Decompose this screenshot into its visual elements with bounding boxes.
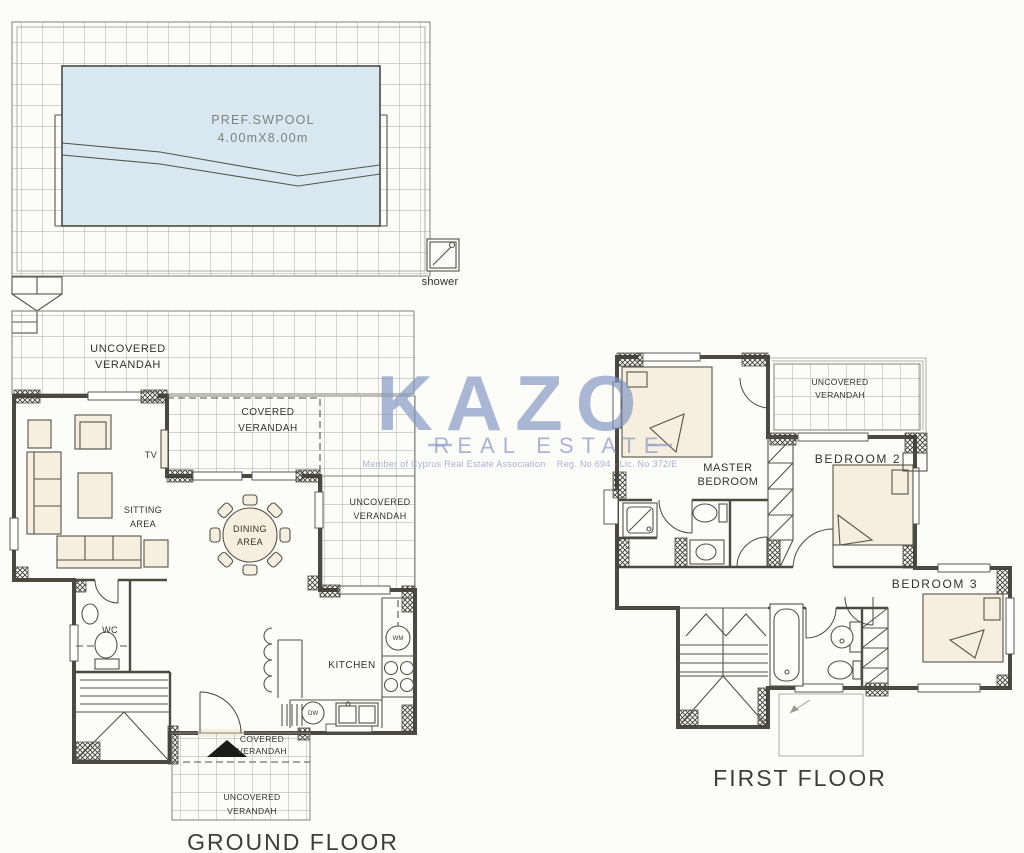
terrace-outline xyxy=(779,694,863,756)
verandah-bottom-label-2: VERANDAH xyxy=(227,806,277,816)
dining-area: DINING AREA xyxy=(210,495,290,575)
covered-verandah-label-1: COVERED xyxy=(242,407,295,418)
hob-icon xyxy=(382,656,415,697)
pool-size-label: 4.00mX8.00m xyxy=(217,131,308,145)
verandah-first-label-1: UNCOVERED xyxy=(811,377,868,387)
pool-water xyxy=(62,66,380,226)
ensuite-shower xyxy=(623,503,657,537)
sitting-area-label-2: AREA xyxy=(130,519,156,529)
kitchen-sink xyxy=(336,702,378,726)
verandah-right-label-1: UNCOVERED xyxy=(349,497,410,507)
bedroom2-bed xyxy=(833,465,913,545)
coffee-table xyxy=(78,473,112,518)
bathroom-sink xyxy=(831,622,862,652)
bathroom-toilet xyxy=(828,661,861,679)
shower-label: shower xyxy=(422,276,459,288)
ensuite-door xyxy=(659,500,692,533)
shower-tray-icon: shower xyxy=(422,239,459,288)
uncovered-verandah-top: UNCOVERED VERANDAH xyxy=(12,311,414,394)
covered-verandah-label-2: VERANDAH xyxy=(238,423,298,434)
verandah-top-label-2: VERANDAH xyxy=(95,359,161,371)
covered-verandah-entrance-label-1: COVERED xyxy=(240,734,284,744)
bedroom3-label: BEDROOM 3 xyxy=(892,577,978,591)
bathtub xyxy=(770,604,803,686)
armchair xyxy=(75,415,111,449)
landing-door xyxy=(737,537,767,567)
armchair xyxy=(28,420,51,448)
bedroom3-door xyxy=(845,597,873,625)
armchair xyxy=(144,540,168,567)
tv-label: TV xyxy=(145,450,157,460)
swimming-pool: PREF.SWPOOL 4.00mX8.00m xyxy=(55,66,387,226)
entrance-door xyxy=(198,692,244,737)
watermark-tagline: REAL ESTATE xyxy=(433,433,666,458)
staircase-first xyxy=(678,608,768,727)
master-ensuite xyxy=(623,500,767,567)
master-bedroom-label-2: BEDROOM xyxy=(697,476,758,488)
verandah-right-label-2: VERANDAH xyxy=(353,511,406,521)
wc-door xyxy=(95,580,118,603)
wc-label: WC xyxy=(102,625,118,635)
wc-sink xyxy=(82,604,98,624)
master-bedroom-label-1: MASTER xyxy=(703,462,752,474)
first-floor-plan: UNCOVERED VERANDAH xyxy=(604,353,1014,791)
dining-area-label-1: DINING xyxy=(233,524,267,534)
floor-plan-page: PREF.SWPOOL 4.00mX8.00m shower UNCOVERED… xyxy=(0,0,1024,853)
wc-room: WC xyxy=(76,580,128,669)
bedroom-3: BEDROOM 3 xyxy=(845,577,1003,688)
watermark-legal: Member of Cyprus Real Estate Association… xyxy=(363,459,678,469)
dishwasher-label: DW xyxy=(308,711,318,717)
floor-plan-drawing: PREF.SWPOOL 4.00mX8.00m shower UNCOVERED… xyxy=(0,0,1024,853)
verandah-first-label-2: VERANDAH xyxy=(815,390,865,400)
uncovered-verandah-first: UNCOVERED VERANDAH xyxy=(770,358,926,432)
entrance-verandah: COVERED VERANDAH UNCOVERED VERANDAH xyxy=(172,733,310,820)
sofa-horizontal xyxy=(57,536,141,568)
dining-table xyxy=(223,508,277,562)
bedroom3-bed xyxy=(923,594,1003,662)
bedroom2-door xyxy=(793,529,833,567)
master-door xyxy=(740,378,768,408)
ensuite-toilet xyxy=(693,504,727,522)
bedroom2-label: BEDROOM 2 xyxy=(815,452,901,466)
sitting-area-label-1: SITTING xyxy=(124,505,162,515)
ground-floor-title: GROUND FLOOR xyxy=(187,829,399,853)
bedroom3-closet xyxy=(862,608,888,688)
kitchen-label: KITCHEN xyxy=(328,660,375,671)
sofa-vertical xyxy=(27,452,61,534)
breakfast-bar xyxy=(264,628,302,698)
tv-unit xyxy=(161,430,168,468)
kitchen: WM DW KI xyxy=(264,598,415,728)
covered-verandah-entrance-label-2: VERANDAH xyxy=(237,746,287,756)
sitting-area: TV SITTING AREA xyxy=(27,415,168,568)
verandah-right-tiles xyxy=(322,476,415,590)
terrace-arrow xyxy=(790,705,799,713)
ground-interior-walls xyxy=(74,580,170,733)
bathroom xyxy=(770,604,862,686)
ensuite-sink xyxy=(690,540,724,564)
first-floor-title: FIRST FLOOR xyxy=(713,765,887,791)
verandah-bottom-label-1: UNCOVERED xyxy=(223,792,280,802)
verandah-top-tiles xyxy=(12,311,414,394)
wc-toilet xyxy=(95,632,119,669)
washing-machine-icon: WM xyxy=(386,626,410,650)
dishwasher-icon: DW xyxy=(282,702,324,726)
verandah-top-label-1: UNCOVERED xyxy=(90,343,166,355)
pool-name-label: PREF.SWPOOL xyxy=(211,113,315,127)
washing-machine-label: WM xyxy=(393,636,404,642)
dining-area-label-2: AREA xyxy=(237,537,263,547)
